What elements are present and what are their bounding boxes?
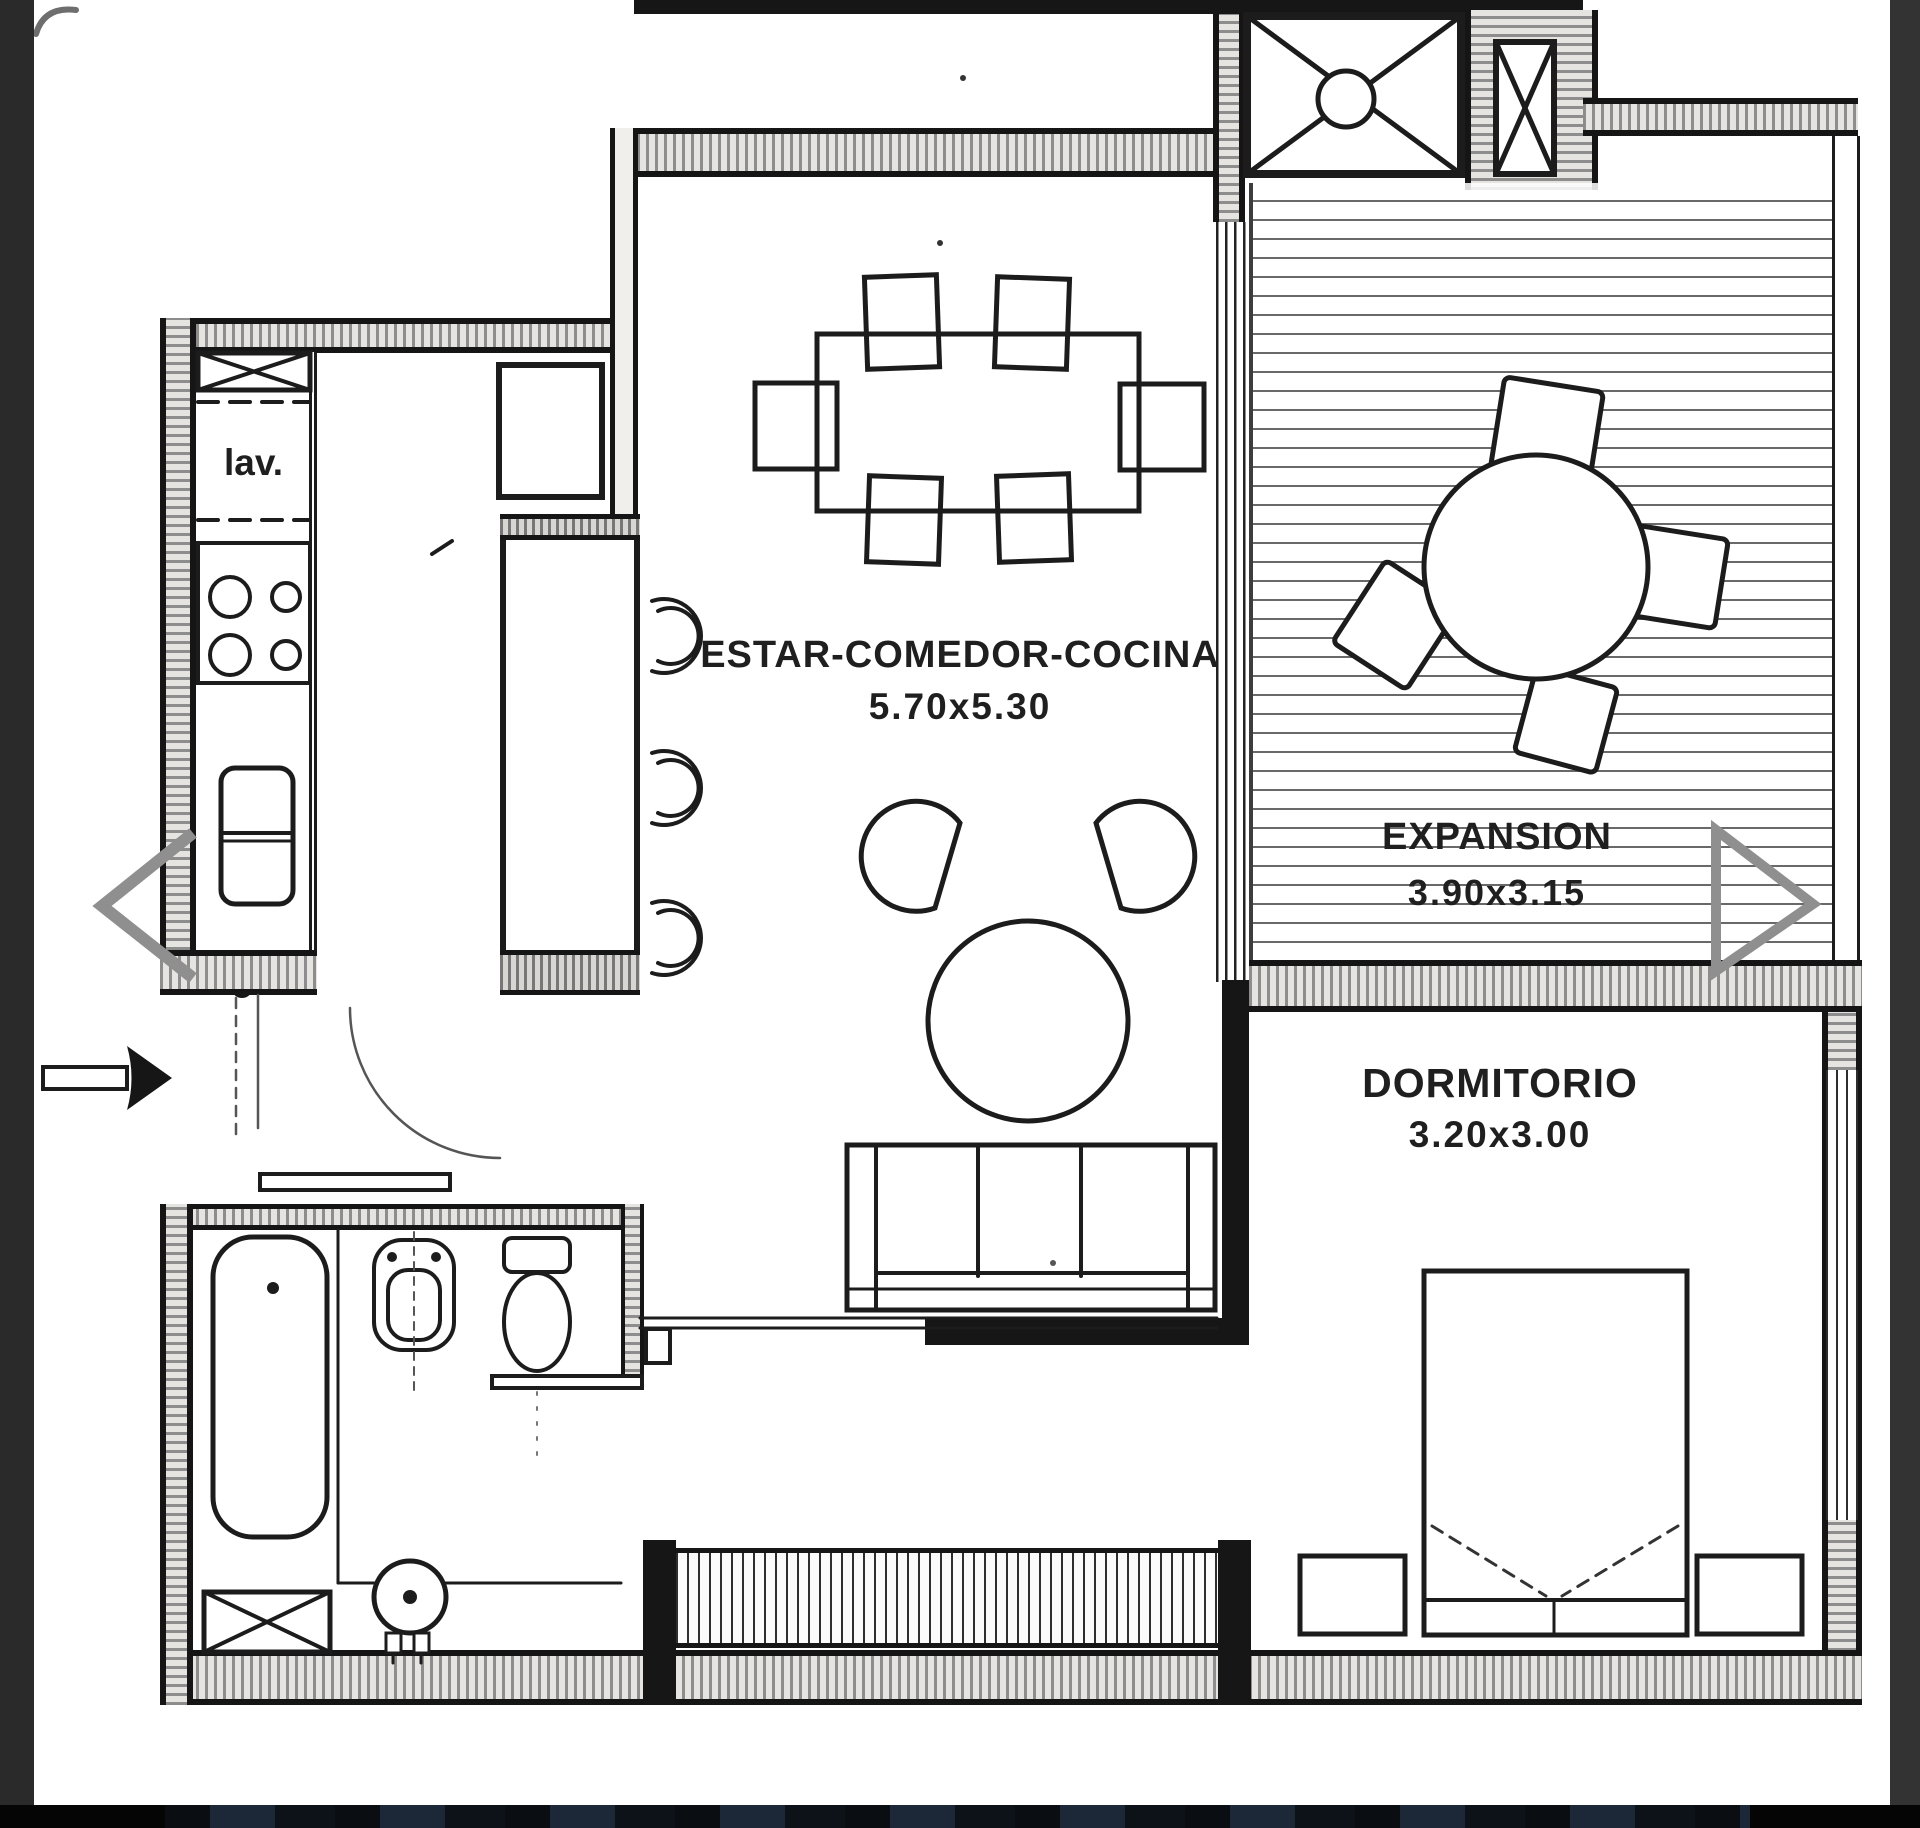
viewer-left-strip	[0, 0, 34, 1828]
scan-speck	[960, 75, 966, 81]
service-shaft-icon	[1496, 42, 1554, 174]
viewer-right-strip	[1890, 0, 1920, 1828]
plan-drawing	[0, 0, 1920, 1828]
round-pouf-icon	[928, 921, 1128, 1121]
bed-icon	[1424, 1271, 1687, 1635]
room-label-laundry: lav.	[196, 444, 311, 483]
room-dims-expansion: 3.90x3.15	[1317, 874, 1677, 912]
laundry-closet-icon	[198, 353, 310, 390]
room-dims-living: 5.70x5.30	[660, 688, 1260, 727]
elevator-icon	[1247, 16, 1461, 174]
cabinet-door-tick	[432, 541, 452, 554]
room-label-expansion: EXPANSION	[1317, 818, 1677, 858]
dining-set	[755, 275, 1204, 564]
shaft-closet-icon	[204, 1592, 330, 1652]
toilet-icon	[504, 1238, 570, 1462]
room-dims-bedroom: 3.20x3.00	[1320, 1116, 1680, 1155]
chevron-left-icon[interactable]	[102, 833, 193, 978]
nightstand-right-icon	[1697, 1556, 1802, 1634]
room-label-bedroom: DORMITORIO	[1320, 1062, 1680, 1105]
water-heater-icon	[374, 1561, 446, 1663]
room-label-living: ESTAR-COMEDOR-COCINA	[660, 636, 1260, 676]
entry-door-swing	[236, 995, 500, 1158]
outdoor-dining-set	[1332, 377, 1728, 774]
scan-speck	[1050, 1260, 1056, 1266]
nightstand-left-icon	[1300, 1556, 1405, 1634]
bathtub-icon	[213, 1237, 327, 1537]
stove-icon	[198, 543, 310, 683]
floorplan-viewer: ESTAR-COMEDOR-COCINA 5.70x5.30 EXPANSION…	[0, 0, 1920, 1828]
sofa-icon	[847, 1145, 1215, 1310]
bidet-icon	[374, 1232, 454, 1395]
outdoor-table-icon	[1424, 455, 1648, 679]
fridge-icon	[221, 768, 293, 904]
armchairs-icon	[861, 801, 1195, 911]
next-photo-fragment	[165, 1805, 1750, 1828]
corner-curve-artifact	[36, 10, 76, 35]
chevron-right-icon[interactable]	[1716, 830, 1813, 971]
scan-speck	[937, 240, 943, 246]
entry-arrow-icon	[43, 1046, 172, 1110]
